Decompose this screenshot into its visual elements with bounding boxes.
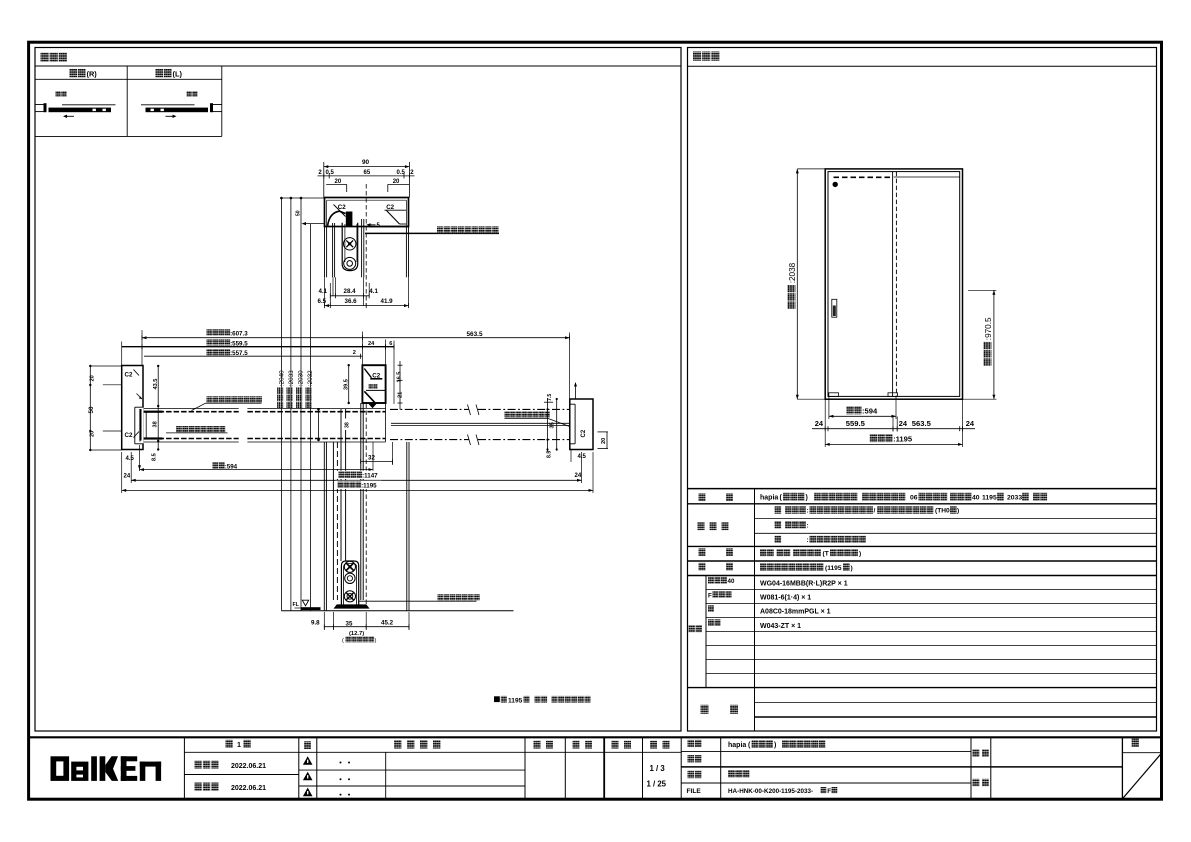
svg-text::607.3: :607.3 — [230, 330, 248, 337]
svg-text:W043-ZT × 1: W043-ZT × 1 — [760, 623, 801, 630]
svg-text:24: 24 — [575, 473, 582, 479]
svg-text:32: 32 — [368, 455, 375, 462]
svg-text:WG04-16MBB(R·L)R2P × 1: WG04-16MBB(R·L)R2P × 1 — [760, 580, 848, 587]
svg-text:24: 24 — [368, 341, 375, 347]
svg-text:W081-6(1·4) × 1: W081-6(1·4) × 1 — [760, 595, 811, 602]
svg-text:24: 24 — [815, 419, 824, 428]
svg-text:20: 20 — [601, 438, 607, 444]
svg-text:C2: C2 — [125, 371, 133, 378]
svg-text:4.5: 4.5 — [126, 456, 135, 462]
svg-text:45.2: 45.2 — [381, 619, 394, 626]
svg-text:4.1: 4.1 — [319, 288, 328, 295]
svg-text:36.6: 36.6 — [345, 298, 358, 305]
svg-text:2033: 2033 — [1007, 494, 1022, 501]
svg-text:39.5: 39.5 — [344, 379, 350, 390]
svg-text:28.4: 28.4 — [344, 288, 357, 295]
svg-text:40: 40 — [728, 578, 735, 585]
svg-text:A08C0-18mmPGL × 1: A08C0-18mmPGL × 1 — [760, 609, 831, 616]
svg-text:50: 50 — [88, 406, 95, 413]
svg-text:(1195: (1195 — [825, 565, 842, 572]
svg-text:24: 24 — [899, 419, 908, 428]
svg-text:): ) — [957, 508, 959, 515]
svg-text::594: :594 — [862, 407, 878, 416]
svg-text:): ) — [859, 550, 861, 557]
svg-text:06: 06 — [910, 494, 918, 501]
svg-text:6: 6 — [389, 341, 392, 347]
svg-text::2040: :2040 — [278, 370, 285, 386]
svg-text:2022.06.21: 2022.06.21 — [231, 785, 266, 792]
svg-text::2038: :2038 — [788, 262, 797, 283]
svg-text::2032: :2032 — [307, 370, 314, 386]
svg-text:1 / 25: 1 / 25 — [647, 780, 667, 789]
svg-text::2030: :2030 — [297, 370, 304, 386]
svg-text:): ) — [806, 494, 808, 501]
svg-text:(12.7): (12.7) — [349, 631, 364, 637]
svg-text:563.5: 563.5 — [912, 419, 932, 428]
svg-text:F: F — [827, 788, 831, 795]
svg-text::: : — [807, 537, 809, 544]
svg-text:20: 20 — [90, 431, 96, 437]
svg-text:/: / — [874, 508, 876, 515]
svg-text:4.5: 4.5 — [578, 454, 587, 460]
svg-text:24: 24 — [124, 473, 131, 479]
svg-text:FILE: FILE — [687, 788, 702, 795]
svg-text:6.5: 6.5 — [318, 298, 327, 305]
svg-text:4.1: 4.1 — [369, 288, 378, 295]
svg-text::: : — [807, 522, 809, 529]
svg-text:559.5: 559.5 — [846, 419, 866, 428]
svg-text:1195: 1195 — [982, 494, 997, 501]
svg-text:F: F — [708, 592, 712, 599]
svg-text::970.5: :970.5 — [984, 317, 993, 340]
svg-text:20: 20 — [393, 179, 400, 185]
svg-text:41.9: 41.9 — [381, 298, 394, 305]
svg-text::2033: :2033 — [288, 370, 295, 386]
svg-text::1147: :1147 — [362, 473, 378, 480]
svg-text:35: 35 — [550, 422, 556, 428]
svg-text:): ) — [375, 638, 377, 644]
svg-text:1195: 1195 — [508, 697, 523, 704]
svg-text:): ) — [774, 742, 776, 749]
svg-text:65: 65 — [364, 170, 371, 176]
svg-text:(L): (L) — [173, 70, 183, 79]
svg-text:hapia: hapia — [728, 742, 746, 749]
svg-text::1195: :1195 — [361, 483, 377, 490]
svg-text:(TH0: (TH0 — [935, 508, 950, 515]
svg-text:C2: C2 — [581, 429, 587, 437]
svg-text:20: 20 — [335, 179, 342, 185]
svg-text:(R): (R) — [87, 70, 98, 79]
svg-text:20: 20 — [90, 375, 96, 381]
svg-text::: : — [807, 508, 809, 515]
svg-text:1: 1 — [237, 740, 241, 749]
svg-text:35: 35 — [346, 620, 353, 627]
svg-text:hapia: hapia — [760, 494, 778, 501]
svg-text:24: 24 — [966, 419, 975, 428]
svg-text:563.5: 563.5 — [467, 331, 483, 338]
svg-text:C2: C2 — [125, 432, 133, 439]
svg-text:FL: FL — [293, 602, 300, 608]
svg-text:8.5: 8.5 — [152, 453, 158, 461]
svg-text:43.5: 43.5 — [153, 379, 159, 390]
svg-text:38: 38 — [153, 421, 159, 427]
svg-text:): ) — [851, 565, 853, 572]
svg-text:50: 50 — [296, 210, 302, 216]
svg-text:0.5: 0.5 — [326, 170, 335, 176]
svg-text:(: ( — [342, 638, 344, 644]
svg-text:2022.06.21: 2022.06.21 — [231, 763, 266, 770]
svg-text:1 / 3: 1 / 3 — [650, 764, 666, 773]
svg-text:21: 21 — [398, 392, 404, 398]
svg-text:9.8: 9.8 — [311, 619, 320, 626]
svg-text:(T: (T — [823, 550, 829, 557]
svg-text:16.5: 16.5 — [397, 372, 403, 383]
svg-text:40: 40 — [972, 494, 980, 501]
svg-text::1195: :1195 — [893, 434, 913, 443]
svg-text:2: 2 — [353, 350, 356, 356]
svg-text:38: 38 — [345, 422, 351, 428]
svg-text:8.5: 8.5 — [547, 451, 553, 458]
svg-text:HA-HNK-00-K200-1195-2033-: HA-HNK-00-K200-1195-2033- — [728, 788, 813, 795]
svg-text:7.5: 7.5 — [547, 394, 553, 401]
svg-text:90: 90 — [362, 159, 370, 166]
